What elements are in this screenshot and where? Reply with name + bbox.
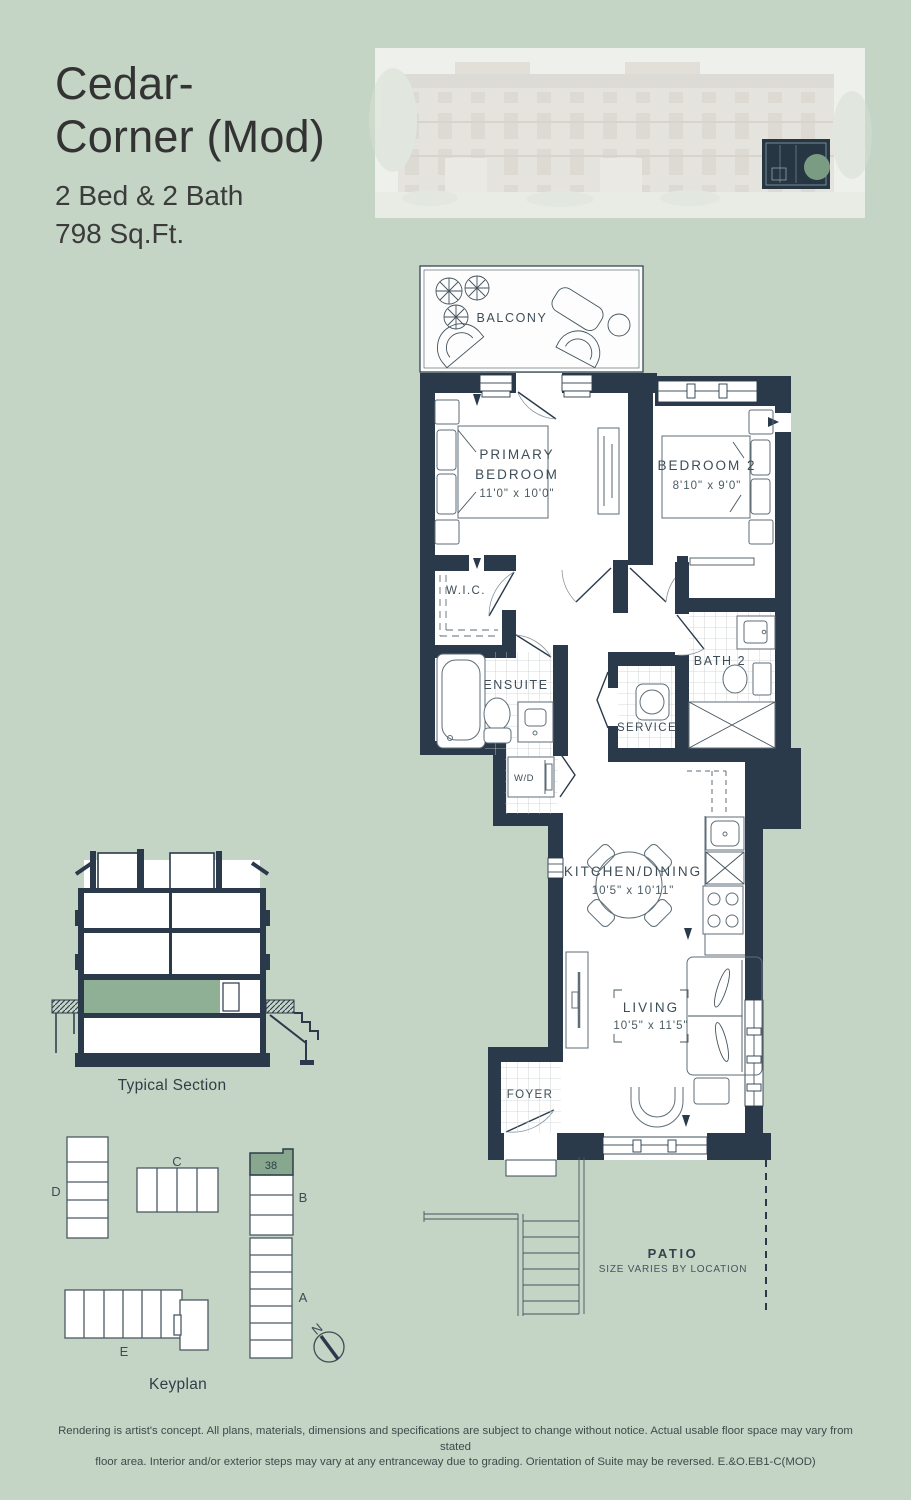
section-right-stairs <box>266 1000 318 1065</box>
plan-title: Cedar- Corner (Mod) <box>55 58 325 163</box>
keyplan-unit-number: 38 <box>265 1160 277 1172</box>
primary-dims: 11'0" x 10'0" <box>479 488 554 500</box>
entry-step <box>506 1160 556 1176</box>
foyer: FOYER <box>501 1062 561 1133</box>
floorplan-sheet: BALCONY <box>0 0 911 1500</box>
primary-label-2: BEDROOM <box>475 467 559 482</box>
ensuite-vanity <box>518 702 553 742</box>
keyplan <box>65 1137 344 1362</box>
keyplan-label: Keyplan <box>149 1376 207 1393</box>
floor-plan: BALCONY <box>420 266 801 1316</box>
wic-label: W.I.C. <box>446 585 486 597</box>
bed-bath-count: 2 Bed & 2 Bath <box>55 177 325 214</box>
square-footage: 798 Sq.Ft. <box>55 215 325 252</box>
balcony-door-opening <box>516 373 562 393</box>
living-rear-window <box>603 1137 707 1154</box>
dishwasher <box>706 852 744 884</box>
unit-floor <box>420 373 801 1160</box>
plan-title-line2: Corner (Mod) <box>55 111 325 164</box>
balcony: BALCONY <box>420 266 643 372</box>
bath-2: BATH 2 <box>675 612 775 748</box>
kitchen-dims: 10'5" x 10'11" <box>592 885 675 897</box>
section-highlighted-unit <box>84 980 220 1013</box>
exterior-stairs <box>424 1157 584 1316</box>
bedroom2-dims: 8'10" x 9'0" <box>673 480 742 492</box>
plan-specs: 2 Bed & 2 Bath 798 Sq.Ft. <box>55 177 325 251</box>
bath2-shower <box>689 702 775 748</box>
stove <box>703 886 743 934</box>
bedroom2-label: BEDROOM 2 <box>657 458 756 473</box>
ensuite-label: ENSUITE <box>483 678 548 692</box>
patio-label: PATIO <box>648 1246 699 1261</box>
keyplan-building-a <box>250 1238 292 1358</box>
disclaimer: Rendering is artist's concept. All plans… <box>45 1424 866 1471</box>
living-dims: 10'5" x 11'5" <box>613 1020 688 1032</box>
typical-section-label: Typical Section <box>118 1077 227 1094</box>
keyplan-building-e <box>65 1290 208 1350</box>
primary-label-1: PRIMARY <box>479 447 554 462</box>
wd-label: W/D <box>514 773 534 784</box>
typical-section: Typical Section <box>52 849 318 1094</box>
ensuite-toilet <box>484 698 510 730</box>
section-left-balcony <box>52 1000 80 1053</box>
kitchen-label: KITCHEN/DINING <box>564 864 702 879</box>
kitchen-sink <box>706 817 744 850</box>
disclaimer-line2: floor area. Interior and/or exterior ste… <box>45 1455 866 1471</box>
foyer-label: FOYER <box>507 1089 554 1101</box>
bath2-toilet <box>723 665 747 693</box>
keyplan-label-a: A <box>299 1290 308 1305</box>
balcony-label: BALCONY <box>477 311 548 325</box>
keyplan-label-b: B <box>299 1190 308 1205</box>
bedroom2-window <box>658 381 757 402</box>
patio: PATIO SIZE VARIES BY LOCATION <box>424 1157 766 1316</box>
highlighted-unit-marker <box>762 139 830 189</box>
keyplan-building-d <box>67 1137 108 1238</box>
plan-title-line1: Cedar- <box>55 58 325 111</box>
plan-header: Cedar- Corner (Mod) 2 Bed & 2 Bath 798 S… <box>55 58 325 252</box>
keyplan-building-c <box>137 1168 218 1212</box>
entry-door-opening <box>504 1133 557 1160</box>
building-rendering <box>369 48 872 218</box>
living-label: LIVING <box>623 1000 679 1015</box>
keyplan-label-c: C <box>172 1154 181 1169</box>
kitchen-window <box>548 858 563 878</box>
service-label: SERVICE <box>617 722 677 734</box>
north-label: N <box>309 1320 326 1338</box>
bath2-label: BATH 2 <box>694 654 746 668</box>
disclaimer-line1: Rendering is artist's concept. All plans… <box>45 1424 866 1455</box>
keyplan-label-d: D <box>51 1184 60 1199</box>
keyplan-label-e: E <box>120 1344 129 1359</box>
patio-note: SIZE VARIES BY LOCATION <box>599 1264 747 1275</box>
